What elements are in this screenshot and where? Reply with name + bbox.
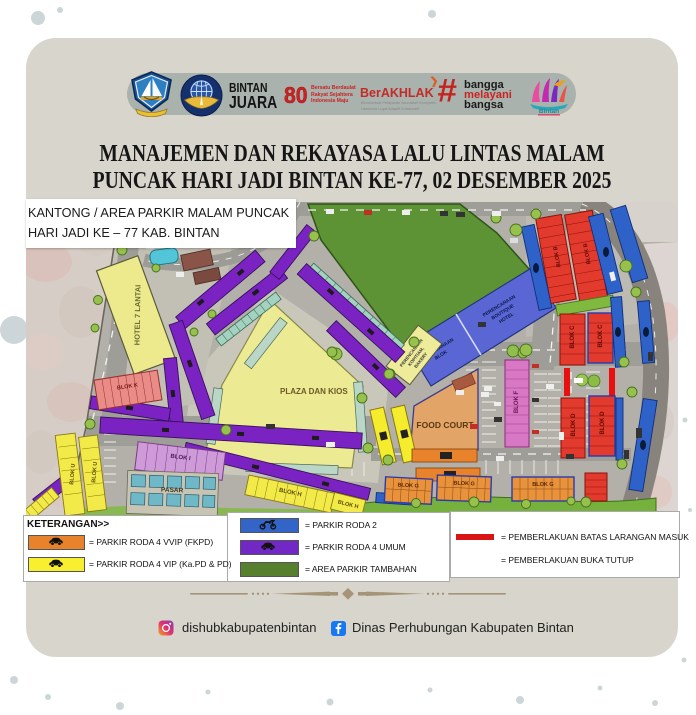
svg-text:BLOK D: BLOK D [571,413,577,437]
svg-text:BLOK G: BLOK G [532,482,553,488]
svg-text:BLOK F: BLOK F [514,391,520,414]
svg-text:BLOK C: BLOK C [570,325,576,349]
svg-text:HOTEL 7 LANTAI: HOTEL 7 LANTAI [132,285,142,346]
svg-text:PASAR: PASAR [161,487,184,495]
svg-text:BLOK C: BLOK C [598,324,604,348]
svg-text:PLAZA DAN KIOS: PLAZA DAN KIOS [280,387,348,396]
svg-text:BLOK G: BLOK G [397,482,419,489]
svg-text:BLOK D: BLOK D [600,411,606,435]
svg-text:BLOK G: BLOK G [453,481,475,488]
svg-text:FOOD COURT: FOOD COURT [416,420,474,430]
svg-text:Bintan: Bintan [539,108,559,115]
